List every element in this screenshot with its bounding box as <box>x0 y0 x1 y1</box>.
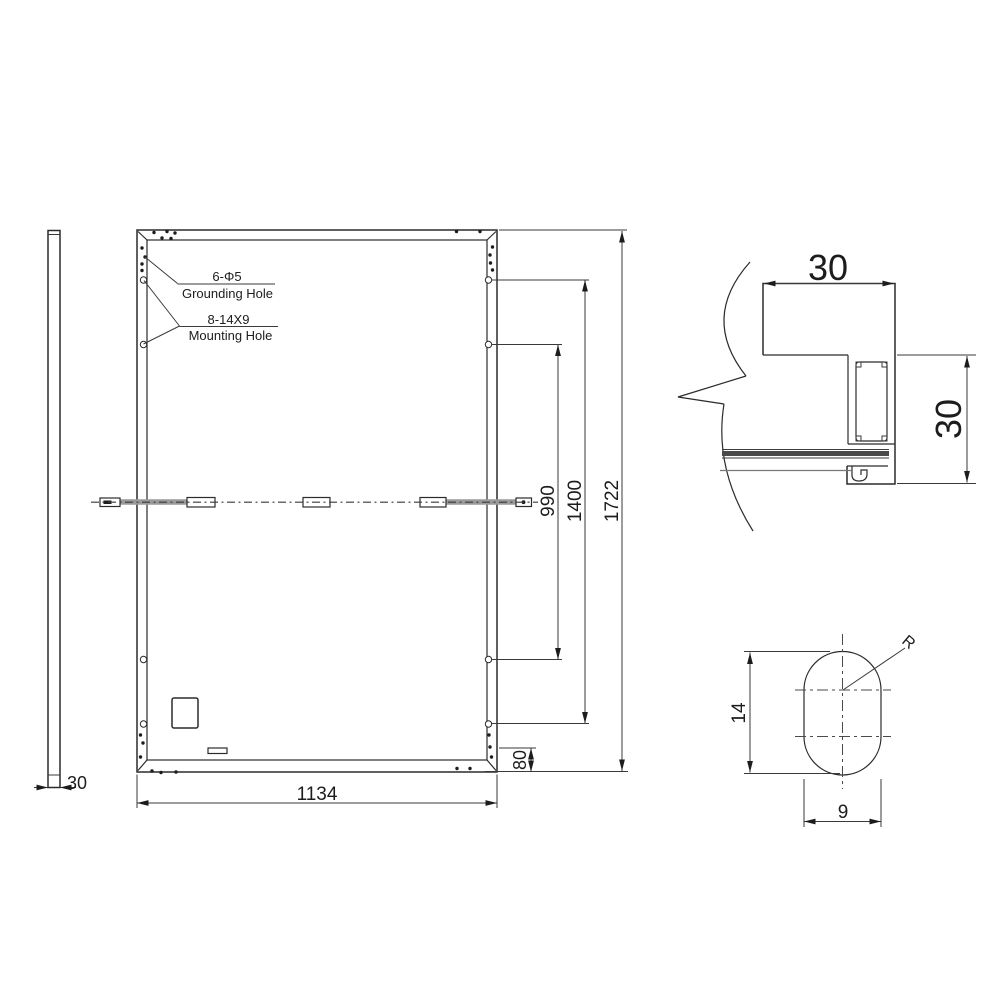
side-thickness-dim-text: 30 <box>67 773 87 793</box>
slot-height-dim-text: 14 <box>729 702 750 724</box>
detail-boundary-arc <box>678 262 753 531</box>
frame-bottom-hook <box>852 466 867 481</box>
side-view: 30 <box>34 231 87 794</box>
rear-view: 6-Φ5 Grounding Hole 8-14X9 Mounting Hole… <box>91 230 628 808</box>
height-dim-text: 1722 <box>602 480 623 522</box>
solar-panel-technical-drawing: 30 <box>0 0 1000 1000</box>
frame-hollow-chamber <box>856 362 887 441</box>
flange-width-dimension: 30 <box>764 247 894 288</box>
radius-label-text: R <box>898 632 918 652</box>
flange-width-dim-text: 30 <box>808 247 848 288</box>
grounding-label-text: Grounding Hole <box>182 286 273 301</box>
bottom-offset-dim-text: 80 <box>510 750 530 770</box>
grounding-hole-callout: 6-Φ5 Grounding Hole <box>145 257 275 301</box>
side-view-panel-edge <box>48 231 60 788</box>
mounting-hole-detail: R 14 9 <box>729 632 918 827</box>
width-dim-text: 1134 <box>297 784 338 805</box>
frame-height-dimension: 30 <box>897 355 976 484</box>
drawing-canvas: 30 <box>0 0 1000 1000</box>
outer-span-dim-text: 1400 <box>565 480 586 522</box>
junction-box <box>172 698 198 728</box>
slot-centerlines <box>795 634 891 789</box>
width-dimension: 1134 <box>137 775 497 809</box>
mounting-spec-text: 8-14X9 <box>208 312 250 327</box>
slot-width-dim-text: 9 <box>838 802 849 823</box>
grounding-spec-text: 6-Φ5 <box>212 269 241 284</box>
serial-label <box>208 748 227 754</box>
slot-height-dimension: 14 <box>729 652 840 774</box>
inner-span-dim-text: 990 <box>538 485 559 517</box>
frame-height-dim-text: 30 <box>928 399 969 439</box>
bottom-offset-dimension: 80 <box>499 748 536 772</box>
glass-laminate <box>720 450 889 471</box>
slot-hole-outline <box>804 652 881 776</box>
frame-cross-section-detail: 30 30 <box>678 247 976 531</box>
mounting-label-text: Mounting Hole <box>189 328 273 343</box>
slot-width-dimension: 9 <box>804 779 881 827</box>
center-section-line <box>91 498 538 508</box>
